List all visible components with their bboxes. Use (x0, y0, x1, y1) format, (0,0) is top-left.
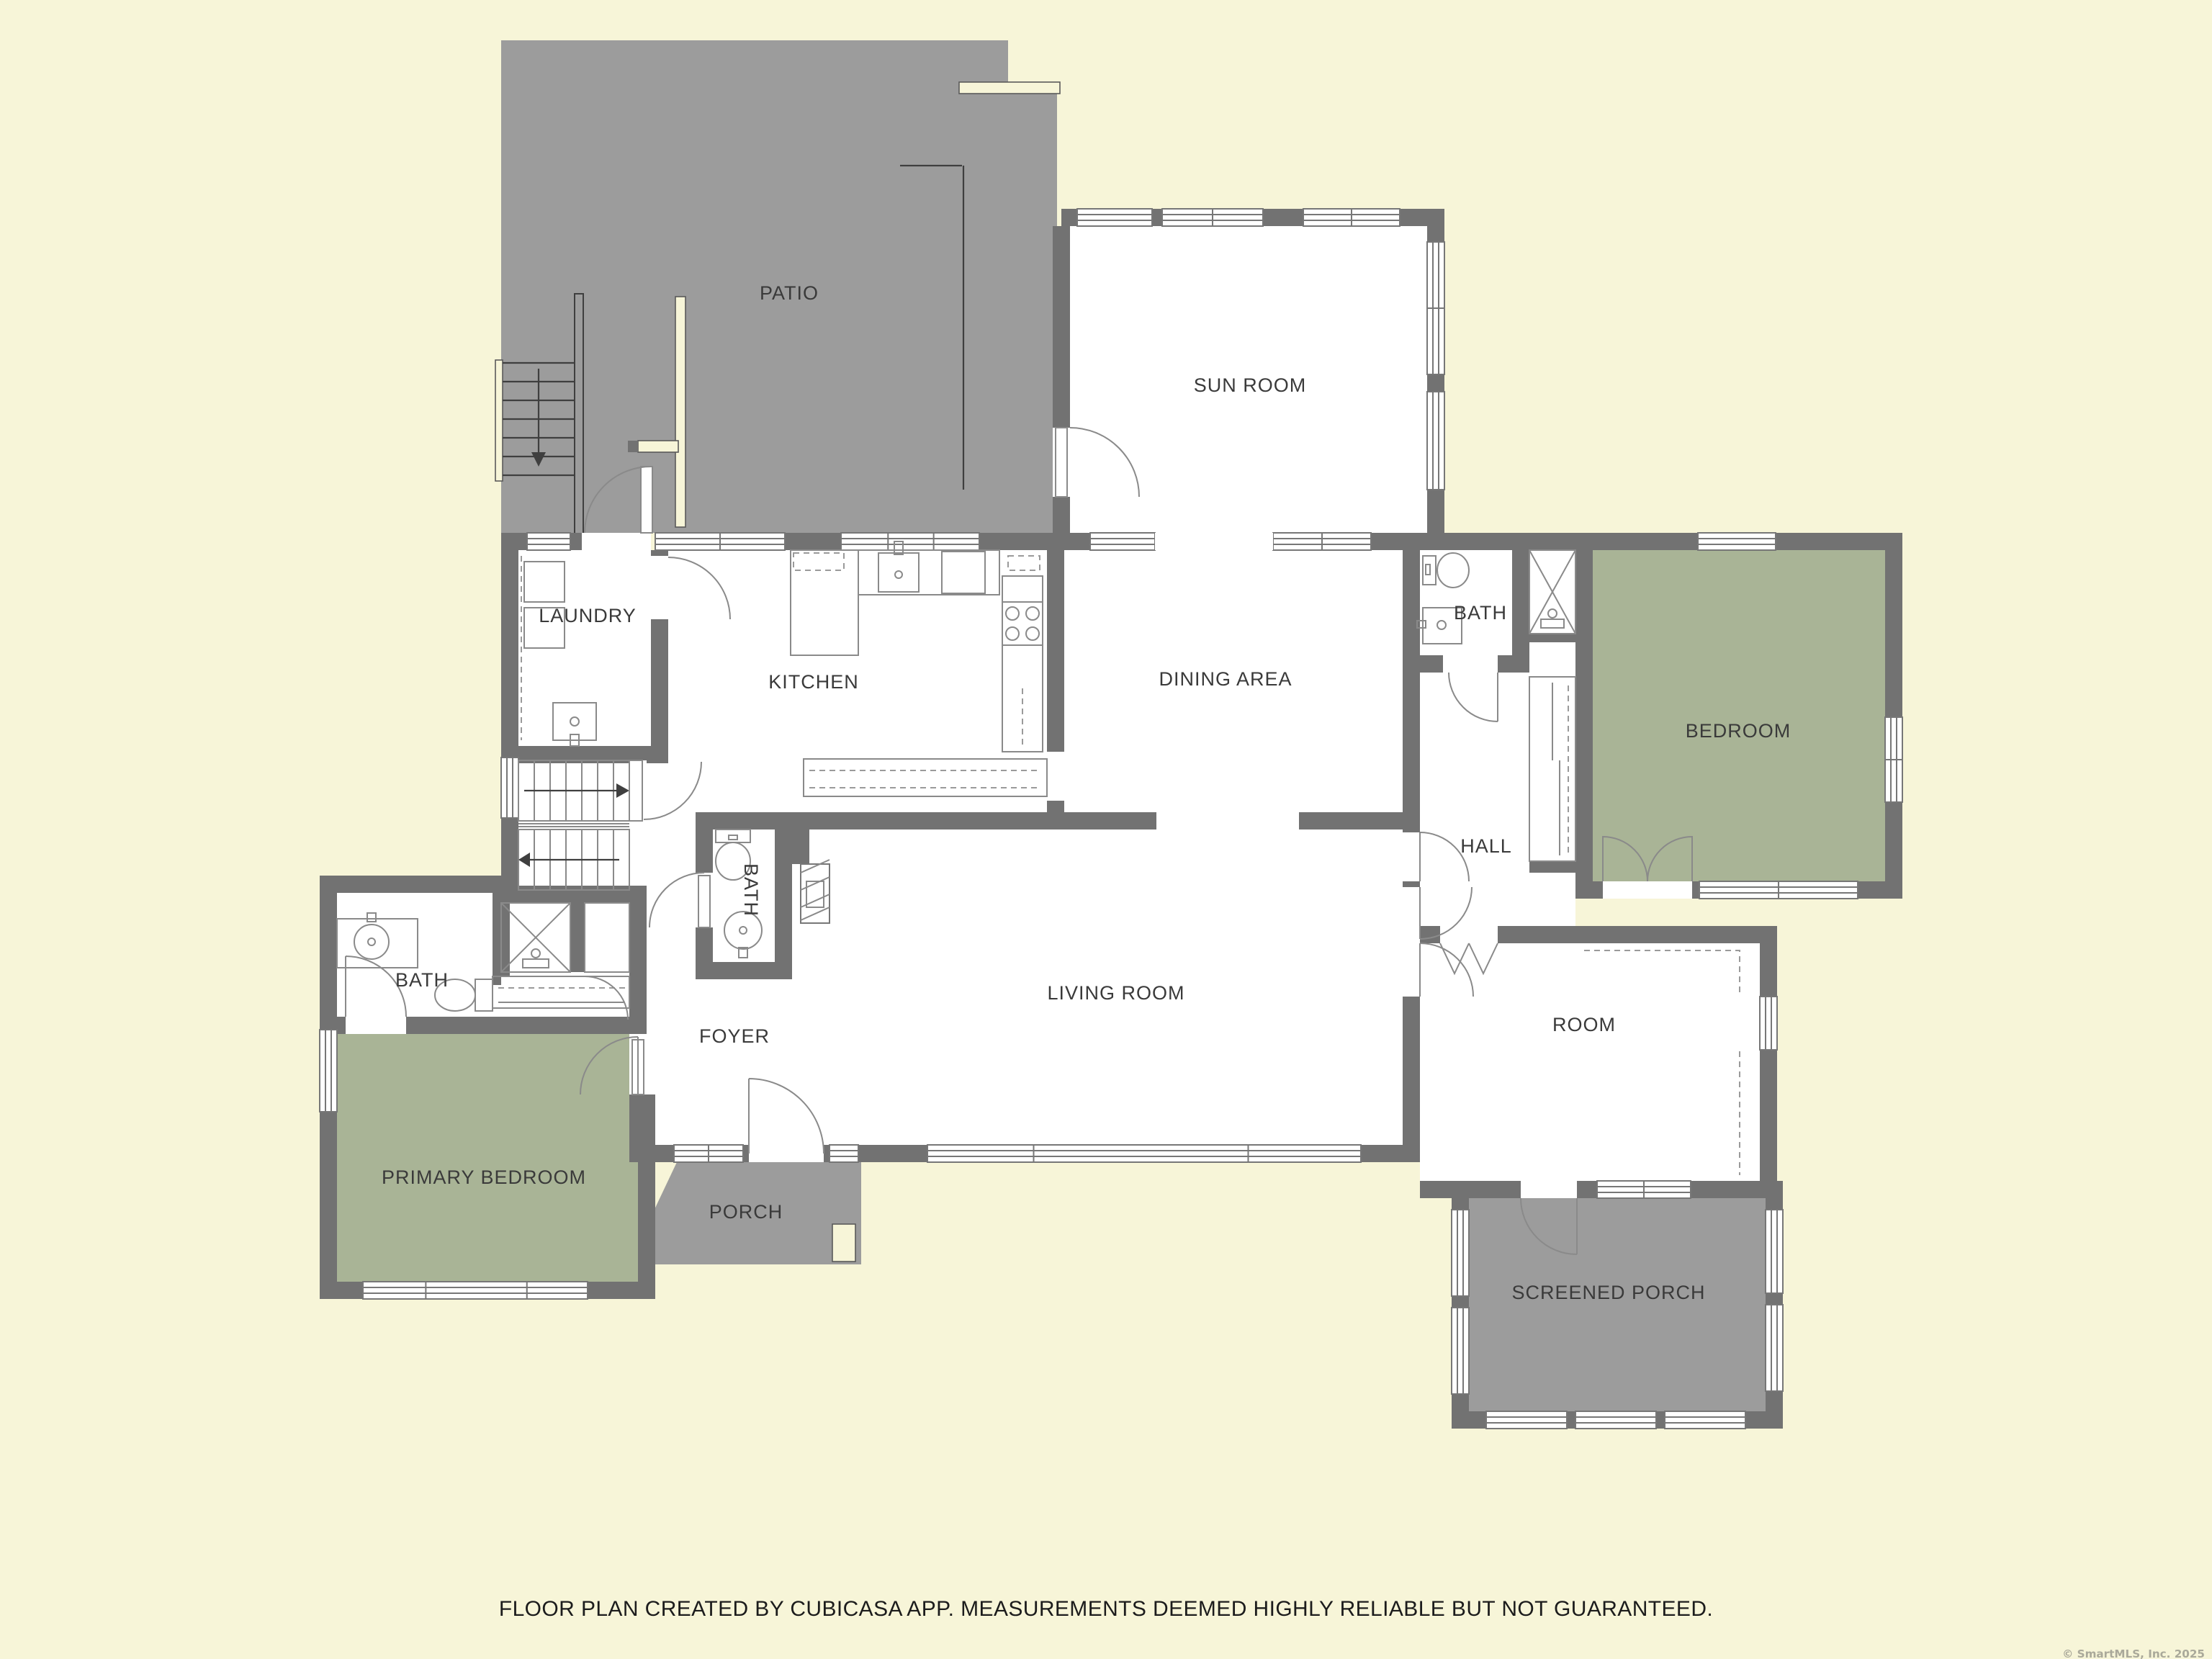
wall-segment (1061, 209, 1077, 226)
floorplan-page: PATIO SUN ROOM LAUNDRY KITCHEN DINING AR… (0, 0, 2212, 1659)
room-label-porch: PORCH (709, 1201, 783, 1223)
door-gap (1403, 887, 1420, 939)
door-gap (1155, 533, 1273, 550)
wall-segment (501, 818, 518, 886)
door-leaf (641, 467, 652, 533)
room-label-patio: PATIO (760, 282, 819, 304)
window (1077, 209, 1152, 226)
wall-segment (1452, 1296, 1469, 1308)
wall-segment (570, 533, 582, 550)
wall-segment (1766, 1181, 1783, 1210)
patio-rail (575, 294, 583, 573)
wall-segment (501, 550, 518, 757)
room-label-screened-porch: SCREENED PORCH (1511, 1282, 1705, 1303)
wall-segment (1575, 881, 1603, 899)
room-label-bath-upper: BATH (1454, 602, 1507, 624)
window (320, 1030, 337, 1112)
wall-segment (1420, 926, 1440, 943)
wall-segment (320, 876, 510, 893)
door-gap (346, 1017, 406, 1034)
wall-segment (1403, 997, 1420, 1145)
room-label-kitchen: KITCHEN (768, 671, 859, 693)
wall-segment (1577, 1181, 1597, 1198)
door-leaf (698, 876, 710, 927)
patio-stair-edge (495, 360, 503, 481)
wall-segment (1760, 1050, 1777, 1198)
wall-segment (1498, 655, 1529, 673)
wall-segment (1567, 1411, 1575, 1429)
footer-disclaimer: FLOOR PLAN CREATED BY CUBICASA APP. MEAS… (499, 1597, 1713, 1621)
window (527, 533, 570, 550)
wall-segment (1452, 1411, 1486, 1429)
door-gap (1403, 943, 1420, 997)
door-leaf (629, 760, 642, 821)
wall-segment (824, 1145, 829, 1162)
window (1766, 1210, 1783, 1293)
room-label-foyer: FOYER (699, 1025, 770, 1047)
window (1575, 1411, 1656, 1429)
wall-segment (1070, 533, 1090, 550)
wall-segment (493, 886, 647, 903)
room-label-laundry: LAUNDRY (539, 605, 637, 626)
wall-segment (1427, 226, 1444, 242)
wall-segment (588, 1282, 655, 1299)
wall-segment (1692, 881, 1699, 899)
wall-segment (1444, 533, 1698, 550)
wall-segment (775, 829, 792, 962)
window (363, 1282, 588, 1299)
wall-segment (1053, 497, 1070, 533)
patio-wall-band (959, 82, 1060, 94)
wall-segment (1575, 533, 1593, 899)
room-label-dining-area: DINING AREA (1159, 668, 1292, 690)
wall-segment (1403, 550, 1420, 832)
door-gap (651, 556, 668, 619)
patio-wall-stub (638, 441, 678, 452)
wall-segment (1656, 1411, 1665, 1429)
wall-segment (629, 886, 647, 1034)
wall-segment (1420, 1181, 1521, 1198)
room-label-room: ROOM (1552, 1014, 1616, 1035)
door-gap (582, 533, 651, 550)
wall-segment (1512, 533, 1529, 673)
wall-segment (743, 1145, 749, 1162)
wall-segment (1152, 209, 1162, 226)
wall-segment (638, 1094, 655, 1282)
room-floor (1420, 926, 1777, 1198)
wall-segment (651, 619, 668, 746)
wall-segment (1529, 634, 1575, 642)
room-label-hall: HALL (1460, 835, 1512, 857)
wall-segment (1420, 655, 1443, 673)
room-label-bedroom: BEDROOM (1686, 720, 1791, 742)
wall-segment (1452, 1181, 1469, 1210)
wall-segment (1427, 490, 1444, 533)
wall-segment (1047, 550, 1064, 752)
room-label-bath-left: BATH (395, 969, 449, 991)
wall-segment (1745, 1411, 1783, 1429)
wall-segment (1885, 550, 1902, 717)
wall-segment (1263, 209, 1303, 226)
door-gap (749, 1145, 824, 1162)
wall-segment (1361, 1145, 1420, 1162)
door-gap (1603, 881, 1692, 899)
room-label-bath-foyer: BATH (740, 863, 762, 917)
patio-post (628, 441, 638, 452)
wall-segment (320, 1112, 337, 1282)
door-gap (1403, 832, 1420, 881)
wall-segment (320, 876, 337, 1034)
wall-segment (792, 829, 809, 864)
wall-segment (696, 812, 1156, 829)
window (1766, 1305, 1783, 1391)
door-leaf (1056, 428, 1067, 497)
wall-segment (1885, 802, 1902, 881)
wall-segment (696, 829, 713, 873)
window (1452, 1308, 1469, 1394)
window (1665, 1411, 1745, 1429)
wall-segment (1403, 881, 1420, 887)
window (841, 533, 979, 550)
window (1698, 533, 1776, 550)
wall-segment (1766, 1293, 1783, 1305)
door-gap (1521, 1181, 1577, 1198)
wall-segment (1498, 926, 1777, 943)
wall-segment (1776, 533, 1902, 550)
wall-segment (629, 1145, 674, 1162)
screened-porch-area (1452, 1181, 1783, 1429)
patio-rail-cream (675, 297, 685, 527)
copyright-notice: © SmartMLS, Inc. 2025 (2062, 1647, 2205, 1659)
wall-segment (1047, 801, 1064, 812)
window (501, 757, 518, 818)
porch-wall-cream (832, 1224, 855, 1262)
window (1427, 392, 1444, 490)
primary-bedroom-floor (337, 1034, 638, 1282)
wall-segment (1053, 226, 1070, 428)
wall-segment (1529, 861, 1575, 873)
wall-segment (858, 1145, 927, 1162)
door-gap (1443, 655, 1498, 673)
room-label-primary-bedroom: PRIMARY BEDROOM (382, 1166, 586, 1188)
window (1486, 1411, 1567, 1429)
wall-segment (696, 962, 792, 979)
window (1452, 1210, 1469, 1296)
floorplan-canvas: PATIO SUN ROOM LAUNDRY KITCHEN DINING AR… (0, 0, 2212, 1659)
wall-segment (1400, 209, 1444, 226)
wall-segment (1691, 1181, 1777, 1198)
wall-segment (1299, 812, 1420, 829)
room-label-sun-room: SUN ROOM (1194, 374, 1307, 396)
wall-segment (785, 533, 841, 550)
wall-segment (1427, 374, 1444, 392)
wall-segment (651, 550, 668, 556)
wall-segment (1760, 926, 1777, 997)
wall-segment (1858, 881, 1902, 899)
window (927, 1145, 1361, 1162)
wall-segment (320, 1282, 363, 1299)
window (1090, 533, 1155, 550)
wall-segment (1371, 533, 1444, 550)
window (1760, 997, 1777, 1050)
wall-segment (406, 1017, 637, 1034)
wall-segment (501, 533, 527, 550)
wall-segment (696, 927, 713, 962)
room-label-living-room: LIVING ROOM (1047, 982, 1184, 1004)
window (829, 1145, 858, 1162)
wall-segment (570, 903, 585, 972)
